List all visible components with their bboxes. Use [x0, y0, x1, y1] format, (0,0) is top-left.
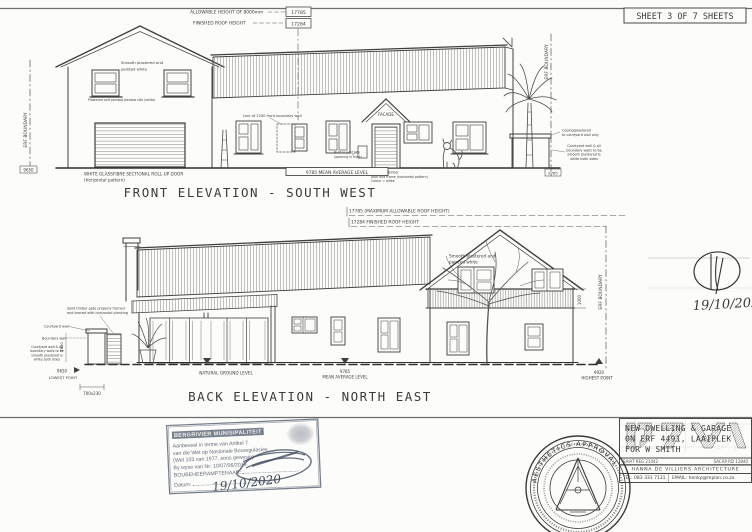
facade-label: FACADE: [378, 112, 394, 117]
finished-roof-value: 17284: [291, 22, 306, 28]
garage-rollup-door: [95, 123, 185, 167]
boundary-wall-note: Line of 1200 front boundary wall: [243, 114, 302, 118]
sheet-number-label: SHEET 3 OF 7 SHEETS: [636, 12, 733, 22]
corrugated-roof: [213, 47, 505, 98]
firm-name: HANNA DE VILLIERS ARCHITECTURE: [620, 465, 751, 474]
erf-boundary-left-label: ERF BOUNDARY: [23, 112, 29, 148]
highest-point-label: HIGHEST POINT: [581, 376, 613, 381]
window-sill-note: Plastered and painted window sills (whit…: [88, 98, 155, 102]
gate-size-dim: 700x230: [83, 391, 101, 396]
finished-roof-label: FINISHED ROOF HEIGHT: [193, 21, 246, 27]
courtyard-wall-label: Courtyard wall: [44, 325, 69, 329]
allowable-height-label: ALLOWABLE HEIGHT OF 8000mm: [190, 10, 263, 16]
drawing-sheet: SHEET 3 OF 7 SHEETS ALLOWABLE HEIGHT OF …: [0, 0, 752, 532]
level-box-left: 9650: [23, 168, 34, 173]
veranda-roof: [132, 295, 277, 314]
erf-boundary-right-label: ERF BOUNDARY: [544, 44, 550, 80]
boundary-wall-label: Boundary wall: [42, 337, 66, 341]
courtyard-back: [86, 329, 121, 364]
gate-note-2: and braced with horizontal planking: [67, 311, 128, 315]
stamp-line-5: BOUBEHEERAMPTENAAR:: [174, 469, 242, 478]
firm-tel: TEL: 083 333 7131: [620, 474, 669, 482]
garage-wall-note-2: painted white: [121, 67, 148, 72]
back-wall-note-2: painted white: [449, 260, 478, 265]
lowest-point-label: LOWEST POINT: [49, 375, 78, 380]
reg-number-right: SACAP RD 12840: [714, 460, 748, 465]
handwritten-approval: 19/10/2020: [648, 250, 752, 314]
level-box-right: 9785: [548, 171, 558, 176]
allowable-height-value: 17785: [291, 10, 306, 16]
garage-door-note-1: WHITE GLASSFIBRE SECTIONAL ROLL-UP DOOR: [84, 172, 183, 177]
garage-wall-note-1: Smooth plastered and: [121, 60, 164, 65]
stamp-date-label: Datum:: [174, 481, 191, 488]
courtyard-note-b4: white both sides: [34, 358, 61, 362]
back-elevation-title: BACK ELEVATION - NORTH EAST: [188, 389, 432, 404]
highest-point-value: 9920: [594, 370, 605, 375]
balcony-balustrade: [428, 289, 573, 308]
timber-gate: [107, 334, 121, 364]
mean-level-label: MEAN AVERAGE LEVEL: [322, 375, 368, 380]
palm-tree-icon: [221, 130, 228, 168]
firm-logo: [620, 419, 751, 452]
front-elevation: ALLOWABLE HEIGHT OF 8000mm 17785 FINISHE…: [20, 7, 602, 200]
front-door: [375, 127, 397, 168]
garage-building: [56, 26, 224, 168]
patio-stacking-doors: [139, 306, 275, 363]
back-elevation: 17785 (MAXIMUM ALLOWABLE ROOF HEIGHT) 17…: [30, 207, 628, 404]
gate-note-1: Solid timber gate properly framed: [67, 307, 125, 311]
approval-date: 19/10/2020: [692, 295, 752, 314]
sheet-number-box: SHEET 3 OF 7 SHEETS: [624, 8, 746, 23]
balcony-height-dim: 1000: [577, 294, 582, 305]
max-roof-height-label: 17785 (MAXIMUM ALLOWABLE ROOF HEIGHT): [349, 209, 450, 215]
courtyard-note-4: white both sides: [570, 157, 598, 161]
erf-boundary-back-label: ERF BOUNDARY: [598, 274, 604, 310]
coping-note-2: to courtyard wall only: [562, 133, 599, 137]
front-door-note-3: Colour = white: [371, 179, 395, 183]
title-block: NEW DWELLING & GARAGE ON ERF 4491, LAAIP…: [619, 418, 752, 483]
mean-level-box: 9785 MEAN AVERAGE LEVEL: [306, 170, 369, 176]
finished-roof-height-label: 17284 FINISHED ROOF HEIGHT: [351, 220, 419, 226]
natural-ground-label: NATURAL GROUND LEVEL: [199, 371, 253, 376]
post-box-note-1: Built-in post box: [334, 151, 360, 155]
garage-door-note-2: (horizontal pattern): [84, 178, 125, 183]
front-elevation-title: FRONT ELEVATION - SOUTH WEST: [124, 185, 377, 200]
mean-level-value: 9785: [340, 369, 351, 374]
reg-number-left: SAIAT REG 21042: [623, 460, 658, 465]
back-wall-note-1: Smooth plastered and: [449, 254, 496, 259]
firm-email: EMAIL: henkp@mplan.co.za: [669, 474, 738, 482]
facade-porch: [362, 99, 410, 168]
back-windows: [292, 317, 400, 352]
post-box-note-2: (opening in front): [334, 155, 362, 159]
main-wing: [211, 38, 513, 168]
courtyard-wall-front: [510, 134, 551, 168]
lowest-point-value: 9650: [57, 369, 68, 374]
gable-two-storey: [420, 230, 583, 363]
